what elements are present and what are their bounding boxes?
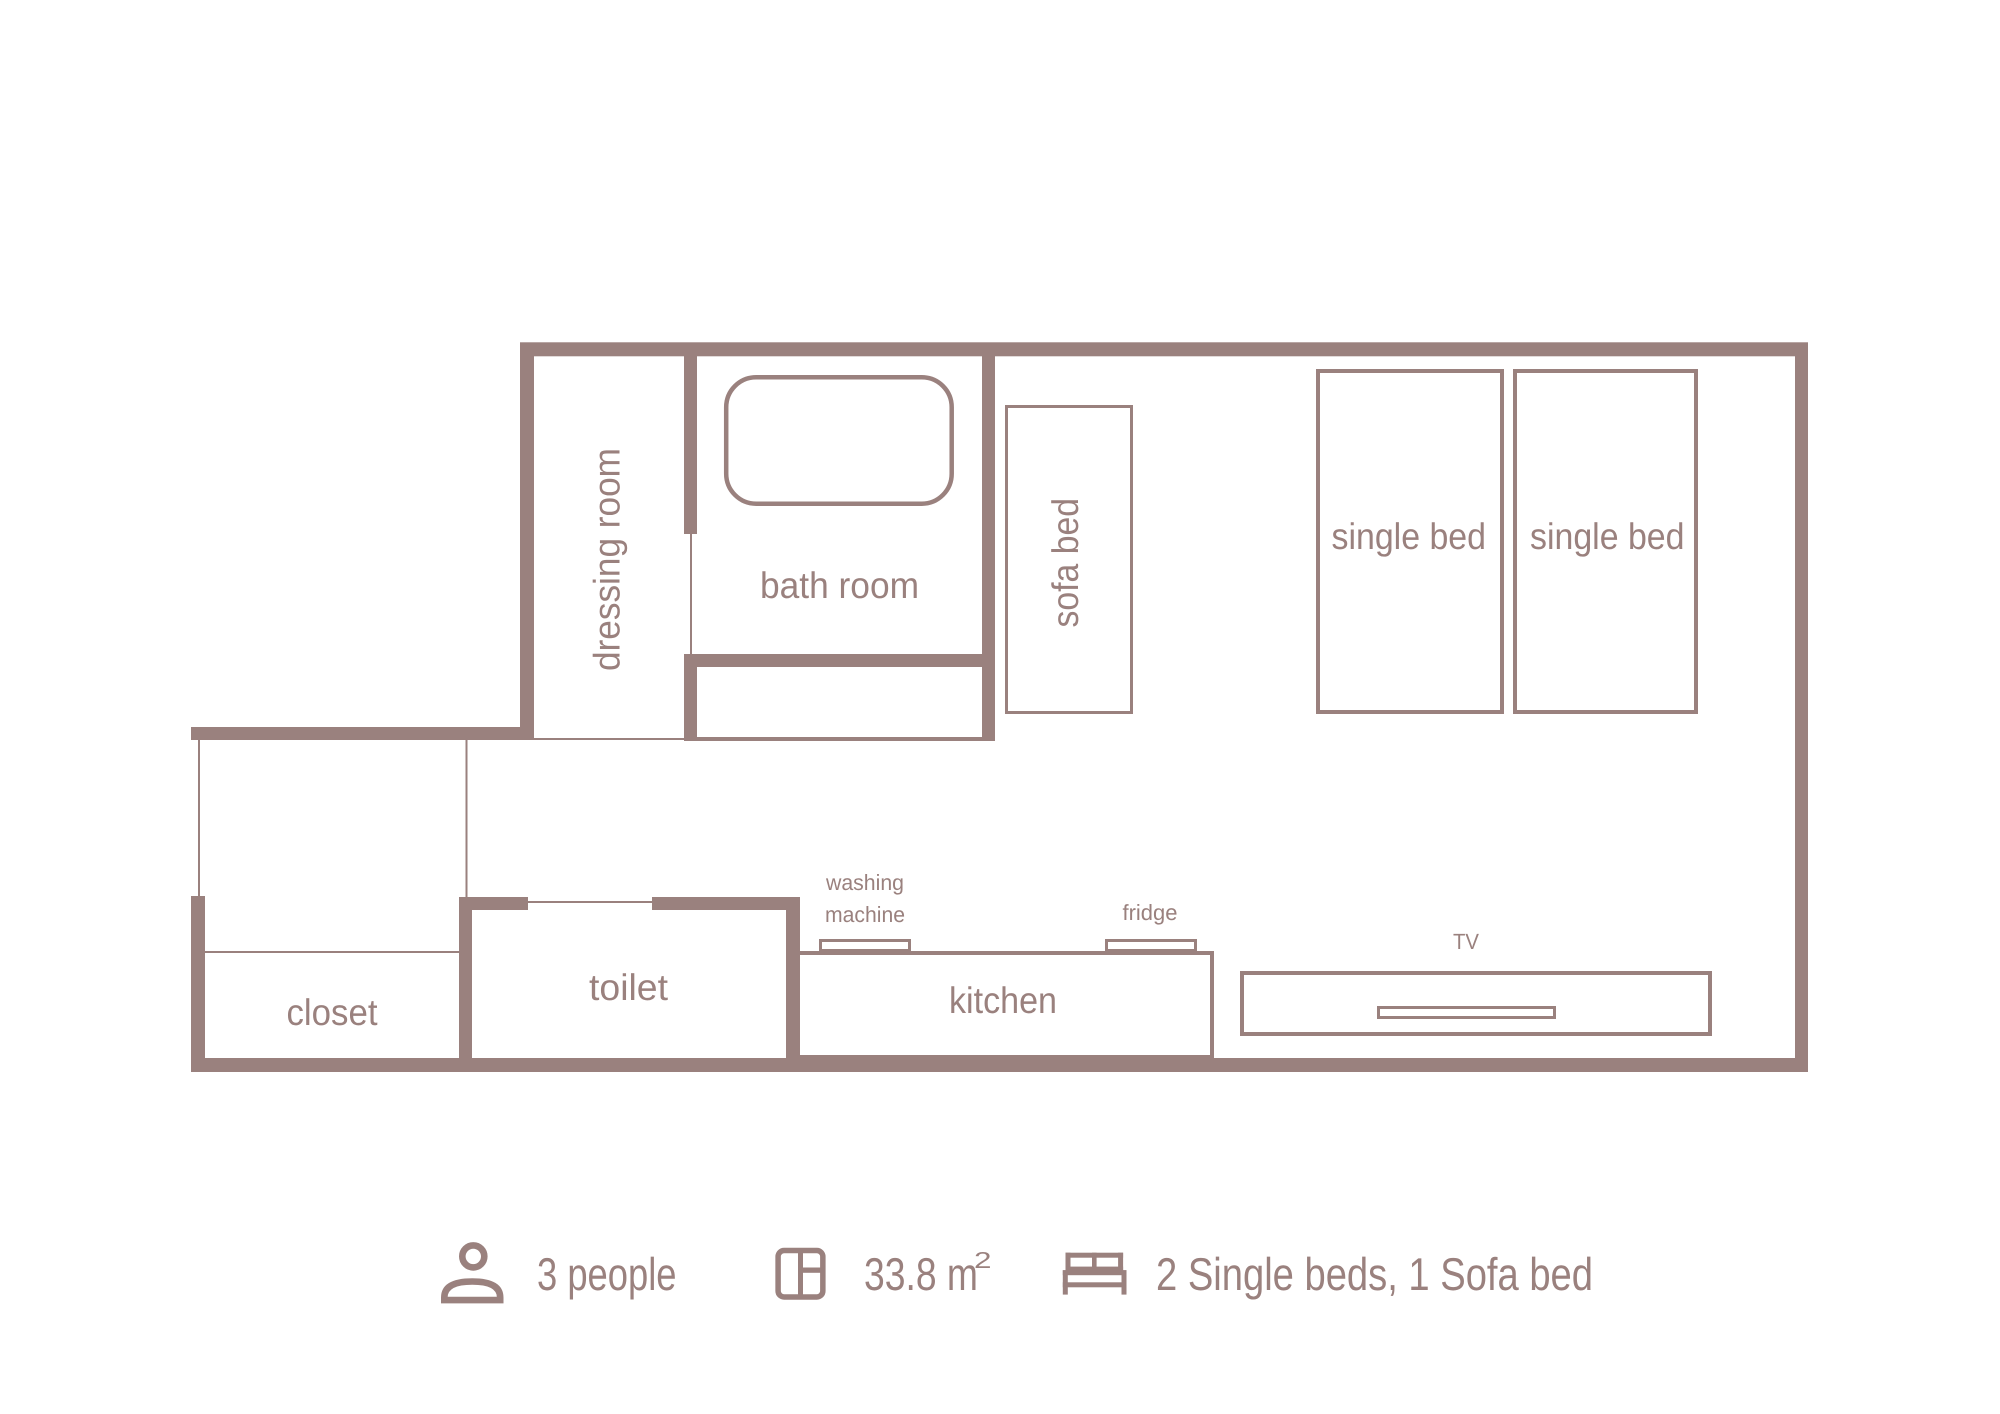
svg-text:washing: washing	[825, 870, 904, 895]
svg-text:toilet: toilet	[589, 967, 669, 1008]
svg-text:fridge: fridge	[1123, 900, 1178, 925]
svg-text:bath room: bath room	[760, 565, 919, 606]
svg-text:closet: closet	[287, 992, 379, 1033]
svg-text:single bed: single bed	[1530, 516, 1685, 557]
svg-text:3 people: 3 people	[537, 1248, 677, 1300]
svg-text:2: 2	[974, 1247, 992, 1273]
svg-text:2 Single beds, 1 Sofa bed: 2 Single beds, 1 Sofa bed	[1156, 1248, 1593, 1300]
svg-text:33.8 m: 33.8 m	[864, 1248, 978, 1300]
svg-text:single bed: single bed	[1332, 516, 1487, 557]
svg-text:sofa bed: sofa bed	[1045, 498, 1086, 628]
svg-text:TV: TV	[1453, 929, 1479, 954]
svg-text:dressing room: dressing room	[587, 448, 628, 671]
svg-text:machine: machine	[825, 902, 905, 927]
svg-text:kitchen: kitchen	[949, 980, 1057, 1021]
